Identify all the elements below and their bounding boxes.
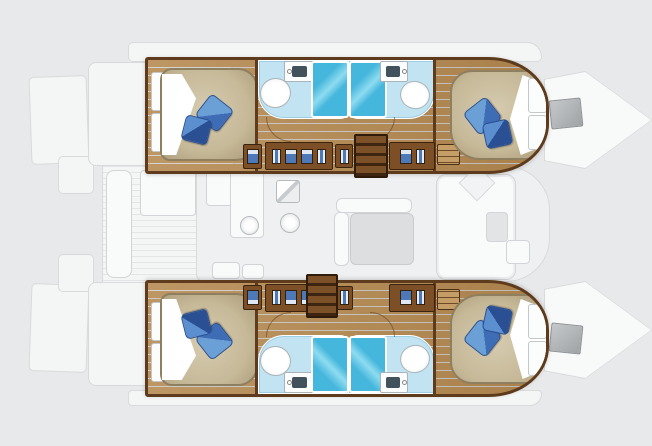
- companionway-stairs-top: [354, 134, 388, 178]
- locker-icon: [400, 149, 412, 164]
- wardrobe-locker: [243, 144, 262, 169]
- cockpit-table: [140, 170, 196, 216]
- sink-basin: [386, 66, 400, 77]
- faucet-icon: [402, 380, 407, 385]
- galley-aft-unit: [212, 262, 240, 279]
- hanging-clothes-icon: [340, 149, 349, 164]
- locker-icon: [285, 149, 297, 164]
- wardrobe-locker: [265, 142, 333, 170]
- transom-top: [88, 62, 150, 166]
- wardrobe-locker: [243, 285, 262, 310]
- sofa-side-table: [486, 212, 508, 242]
- hanging-clothes-icon: [272, 149, 281, 164]
- washbasin-counter: [380, 61, 408, 82]
- galley-aft-sink-unit: [242, 264, 264, 279]
- stage: [0, 0, 652, 446]
- hanging-clothes-icon: [317, 149, 326, 164]
- hull-top: [145, 57, 549, 174]
- pillow: [180, 114, 212, 146]
- bow-hatch-bottom-icon: [549, 322, 584, 354]
- hull-window-panel: [528, 304, 547, 339]
- hull-window-panel: [528, 78, 547, 113]
- forward-console: [506, 240, 530, 264]
- wardrobe-locker: [335, 144, 353, 168]
- dinette-table: [350, 213, 414, 265]
- shower-stall: [311, 61, 349, 118]
- hanging-clothes-icon: [416, 149, 425, 164]
- hull-window-panel: [528, 341, 547, 376]
- sink-basin: [386, 377, 400, 388]
- bow-hatch-top-icon: [549, 97, 584, 129]
- locker-icon: [247, 149, 259, 164]
- wardrobe-locker: [389, 284, 435, 312]
- pillow: [482, 118, 514, 149]
- galley-burner: [280, 213, 300, 233]
- faucet-icon: [402, 69, 407, 74]
- companionway-stairs-bottom: [306, 274, 338, 318]
- locker-icon: [301, 149, 313, 164]
- transom-bottom: [88, 282, 150, 386]
- pillow: [482, 304, 514, 335]
- dinette-seat-side: [334, 212, 349, 266]
- head-door-swing: [266, 312, 291, 337]
- wardrobe-locker: [389, 142, 435, 170]
- faucet-icon: [287, 69, 292, 74]
- locker-icon: [247, 290, 259, 305]
- sink-basin: [292, 66, 307, 77]
- shower-stall: [311, 336, 349, 393]
- hanging-clothes-icon: [340, 291, 349, 306]
- swim-platform-top: [28, 75, 89, 165]
- hull-window-panel: [528, 115, 547, 150]
- swim-platform-bottom: [28, 283, 89, 373]
- galley-sink: [240, 216, 259, 235]
- hanging-clothes-icon: [272, 291, 281, 306]
- locker-icon: [285, 291, 297, 306]
- dinette-seat-aft: [336, 198, 412, 213]
- sink-basin: [292, 377, 307, 388]
- head-door-swing: [266, 117, 291, 142]
- locker-icon: [400, 291, 412, 306]
- head-door-swing: [370, 312, 395, 337]
- faucet-icon: [287, 380, 292, 385]
- cockpit-bench: [106, 170, 132, 278]
- washbasin-counter: [380, 372, 408, 393]
- hanging-clothes-icon: [416, 291, 425, 306]
- hull-bottom: [145, 280, 549, 397]
- galley-stove: [276, 180, 300, 203]
